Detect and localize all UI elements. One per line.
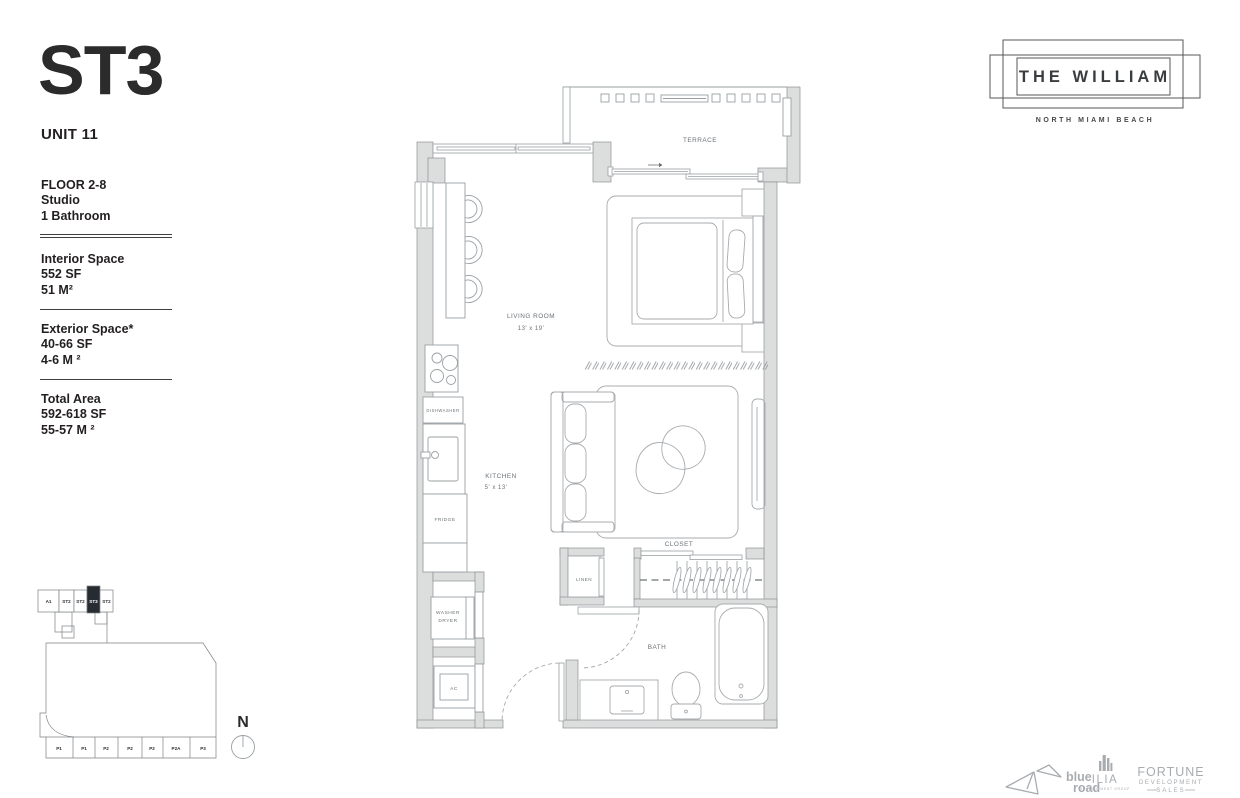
kitchen-dim-label: 5' x 13' [485, 485, 508, 491]
keyplan-label: ST2 [102, 599, 111, 604]
washer-dryer [431, 597, 470, 639]
toilet-bowl [672, 672, 700, 706]
exterior-space-block: Exterior Space* 40-66 SF 4-6 M ² [41, 322, 191, 368]
keyplan-label: ST2 [62, 599, 71, 604]
curtain-divider [584, 360, 768, 371]
keyplan-label-highlighted: ST3 [89, 599, 98, 604]
washer-label: WASHER [436, 610, 460, 616]
linen-door [599, 558, 604, 596]
keyplan-parking: P2 [149, 746, 155, 751]
living-room-dim-label: 13' x 19' [518, 326, 544, 332]
linen-closet: LINEN [568, 556, 604, 597]
total-label: Total Area [41, 392, 191, 407]
driveway-curve [46, 715, 74, 737]
ac-closet-door [475, 664, 483, 712]
terrace-sliding-door [608, 167, 763, 181]
bed [632, 218, 753, 324]
kitchen-cabinet [423, 543, 467, 572]
bath-door-swing [581, 610, 639, 668]
terrace-left-wall [563, 87, 570, 143]
headboard [753, 216, 763, 322]
keyplan-parking-labels: P1 P1 P2 P2 P2 P2A P3 [56, 746, 206, 751]
dishwasher-label: DISHWASHER [426, 408, 459, 413]
tv-console [752, 399, 765, 509]
bath-door [578, 607, 639, 614]
interior-label: Interior Space [41, 252, 191, 267]
entry-door [502, 663, 564, 722]
keyplan-label: A1 [46, 599, 52, 604]
ilia-subtext: DEVELOPMENT GROUP [1080, 787, 1130, 791]
kitchen-label: KITCHEN [485, 473, 517, 480]
wall-bottom-right [563, 720, 777, 728]
divider [40, 379, 172, 380]
keyplan-parking: P2A [172, 746, 182, 751]
coffee-table [636, 442, 685, 493]
living-room-window [433, 144, 593, 153]
fortune-wordmark: FORTUNE DEVELOPMENT SALES [1137, 765, 1204, 794]
wall-linen-left [560, 548, 568, 605]
keyplan-parking: P1 [56, 746, 62, 751]
keyplan-parking: P2 [103, 746, 109, 751]
divider [40, 234, 172, 238]
floorplan-page: { "unit": { "code": "ST3", "number": "UN… [0, 0, 1240, 798]
wall-bottom-left [417, 720, 503, 728]
ac-label: AC [450, 686, 458, 692]
wall-bath-left [566, 660, 578, 720]
floor-plan: TERRACE [405, 75, 815, 740]
bathroom: BATH [578, 604, 768, 720]
exterior-sf: 40-66 SF [41, 337, 191, 352]
exterior-m2: 4-6 M ² [41, 353, 191, 368]
total-sf: 592-618 SF [41, 407, 191, 422]
closet-label: CLOSET [665, 541, 694, 548]
living-room-label: LIVING ROOM [507, 313, 555, 320]
brand-location: NORTH MIAMI BEACH [1036, 117, 1154, 124]
fortune-line3: SALES [1156, 788, 1185, 794]
ilia-building-icon [1099, 755, 1112, 771]
north-arrow: N [228, 708, 268, 768]
bar-stools [465, 196, 482, 303]
divider [40, 309, 172, 310]
entry-door-leaf [559, 663, 564, 721]
closet-sliding-doors [641, 551, 742, 560]
wall-linen-bottom [560, 597, 604, 605]
washer-dryer-door [466, 597, 474, 639]
fortune-line1: FORTUNE [1137, 765, 1204, 779]
wall-closet-left [634, 558, 640, 599]
exterior-label: Exterior Space* [41, 322, 191, 337]
side-window [415, 182, 433, 228]
terrace-entry-arrow [648, 163, 663, 167]
closet [640, 551, 762, 599]
interior-m2: 51 M² [41, 283, 191, 298]
terrace-railing [601, 94, 791, 136]
bed-area [607, 189, 764, 352]
brand-name: THE WILLIAM [1019, 68, 1171, 86]
terrace-label: TERRACE [683, 137, 717, 144]
living-furniture [551, 386, 765, 538]
dryer-label: DRYER [438, 618, 457, 624]
sofa [551, 392, 615, 532]
wall-wd-right-c [475, 712, 484, 728]
floor-spec-block: FLOOR 2-8 Studio 1 Bathroom [41, 178, 191, 224]
brand-logo: THE WILLIAM NORTH MIAMI BEACH [980, 30, 1210, 130]
ilia-wordmark: ILIA [1092, 774, 1118, 786]
nightstand [742, 323, 764, 352]
north-label: N [237, 714, 249, 731]
key-plan: A1 ST2 ST2 ST3 ST2 P1 P1 P2 P2 P2 P2A P3 [30, 580, 230, 770]
nightstand [742, 189, 764, 216]
total-area-block: Total Area 592-618 SF 55-57 M ² [41, 392, 191, 438]
total-m2: 55-57 M ² [41, 423, 191, 438]
interior-sf: 552 SF [41, 267, 191, 282]
kitchen-bar-counter [446, 183, 465, 318]
keyplan-parking: P2 [127, 746, 133, 751]
building-outline [40, 612, 216, 758]
keyplan-parking: P1 [81, 746, 87, 751]
keyplan-label: ST2 [76, 599, 85, 604]
linen-label: LINEN [576, 577, 592, 582]
blue-road-icon [1006, 765, 1061, 794]
fridge-label: FRIDGE [434, 517, 455, 523]
wall-wd-right-a [475, 572, 484, 592]
wall-closet-post-left [634, 548, 641, 559]
fortune-line2: DEVELOPMENT [1139, 779, 1203, 786]
floor-range: FLOOR 2-8 [41, 178, 191, 193]
kitchen-sink [421, 424, 465, 494]
cooktop [425, 345, 458, 392]
vanity-faucet [625, 690, 628, 693]
unit-number: UNIT 11 [41, 126, 98, 143]
keyplan-parking: P3 [200, 746, 206, 751]
layout-type: Studio [41, 193, 191, 208]
terrace-column [783, 98, 791, 136]
wall-closet-post-right [746, 548, 764, 559]
wall-wd-right-b [475, 638, 484, 664]
entry-door-swing [502, 663, 559, 722]
page-title: ST3 [38, 30, 163, 110]
wd-closet-door [475, 592, 483, 638]
footer-logos: blue road ILIA DEVELOPMENT GROUP FORTUNE… [975, 748, 1210, 796]
bathroom-count: 1 Bathroom [41, 209, 191, 224]
wall-column [428, 158, 445, 183]
interior-space-block: Interior Space 552 SF 51 M² [41, 252, 191, 298]
bath-label: BATH [648, 644, 667, 651]
